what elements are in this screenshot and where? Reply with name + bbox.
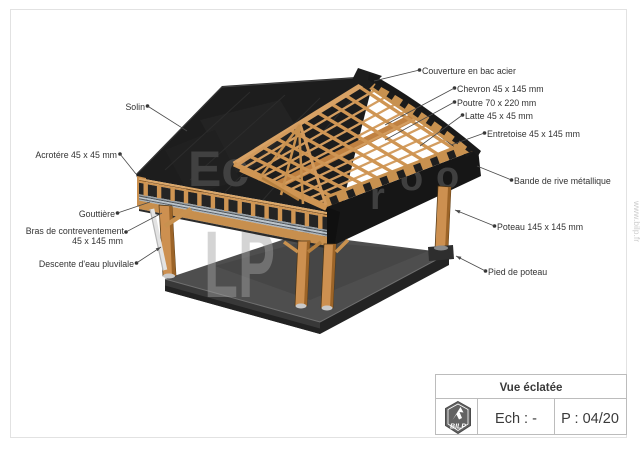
svg-text:Gouttière: Gouttière xyxy=(79,209,115,219)
svg-text:Poutre 70 x 220 mm: Poutre 70 x 220 mm xyxy=(457,98,536,108)
svg-text:Latte 45 x 45 mm: Latte 45 x 45 mm xyxy=(465,111,533,121)
svg-text:P : 04/20: P : 04/20 xyxy=(561,411,619,427)
svg-text:Descente d'eau pluvilale: Descente d'eau pluvilale xyxy=(39,259,134,269)
svg-text:Bras de contreventement: Bras de contreventement xyxy=(26,226,125,236)
svg-text:Chevron 45 x 145 mm: Chevron 45 x 145 mm xyxy=(457,84,544,94)
svg-text:Bande de rive métallique: Bande de rive métallique xyxy=(514,176,611,186)
svg-text:45 x 145 mm: 45 x 145 mm xyxy=(72,236,123,246)
svg-text:www.bilp.fr: www.bilp.fr xyxy=(632,200,640,242)
svg-text:Entretoise 45 x 145 mm: Entretoise 45 x 145 mm xyxy=(487,129,580,139)
svg-text:Vue éclatée: Vue éclatée xyxy=(500,382,563,394)
svg-text:Pied de poteau: Pied de poteau xyxy=(488,267,547,277)
svg-text:Solin: Solin xyxy=(125,102,145,112)
svg-text:Ech : -: Ech : - xyxy=(495,411,537,427)
svg-text:Acrotére 45 x 45 mm: Acrotére 45 x 45 mm xyxy=(35,150,117,160)
svg-text:Poteau 145 x 145 mm: Poteau 145 x 145 mm xyxy=(497,222,583,232)
svg-text:Couverture en bac acier: Couverture en bac acier xyxy=(422,66,516,76)
svg-text:BILP: BILP xyxy=(450,424,466,431)
